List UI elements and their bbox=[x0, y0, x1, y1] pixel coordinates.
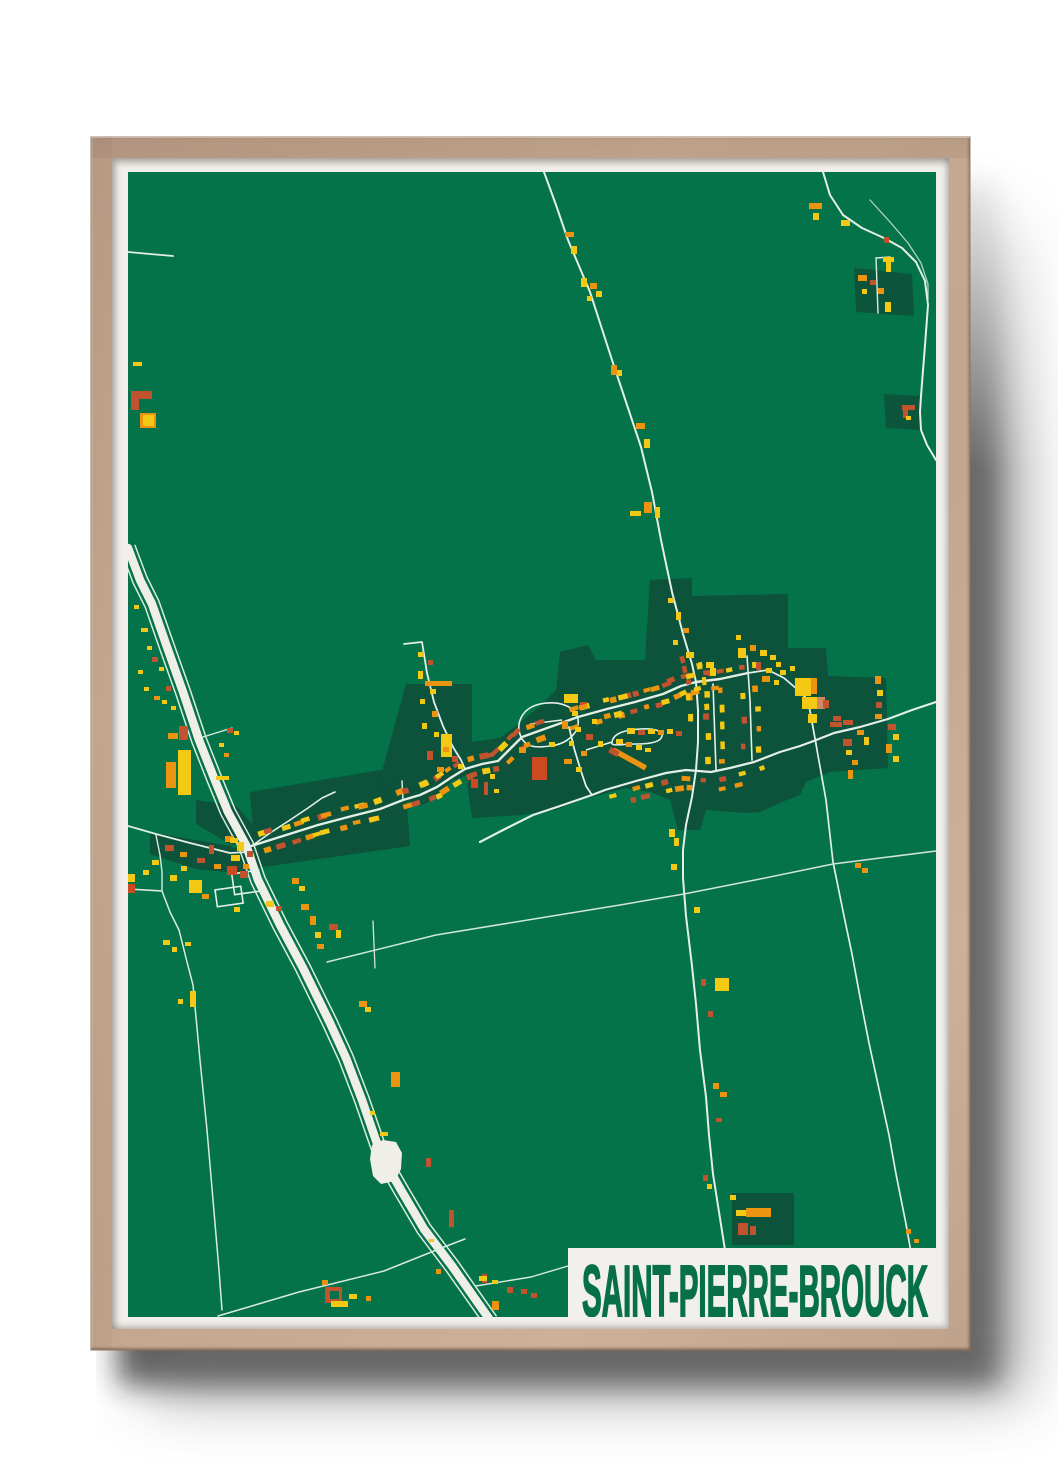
svg-text:SAINT-PIERRE-BROUCK: SAINT-PIERRE-BROUCK bbox=[582, 1252, 928, 1317]
